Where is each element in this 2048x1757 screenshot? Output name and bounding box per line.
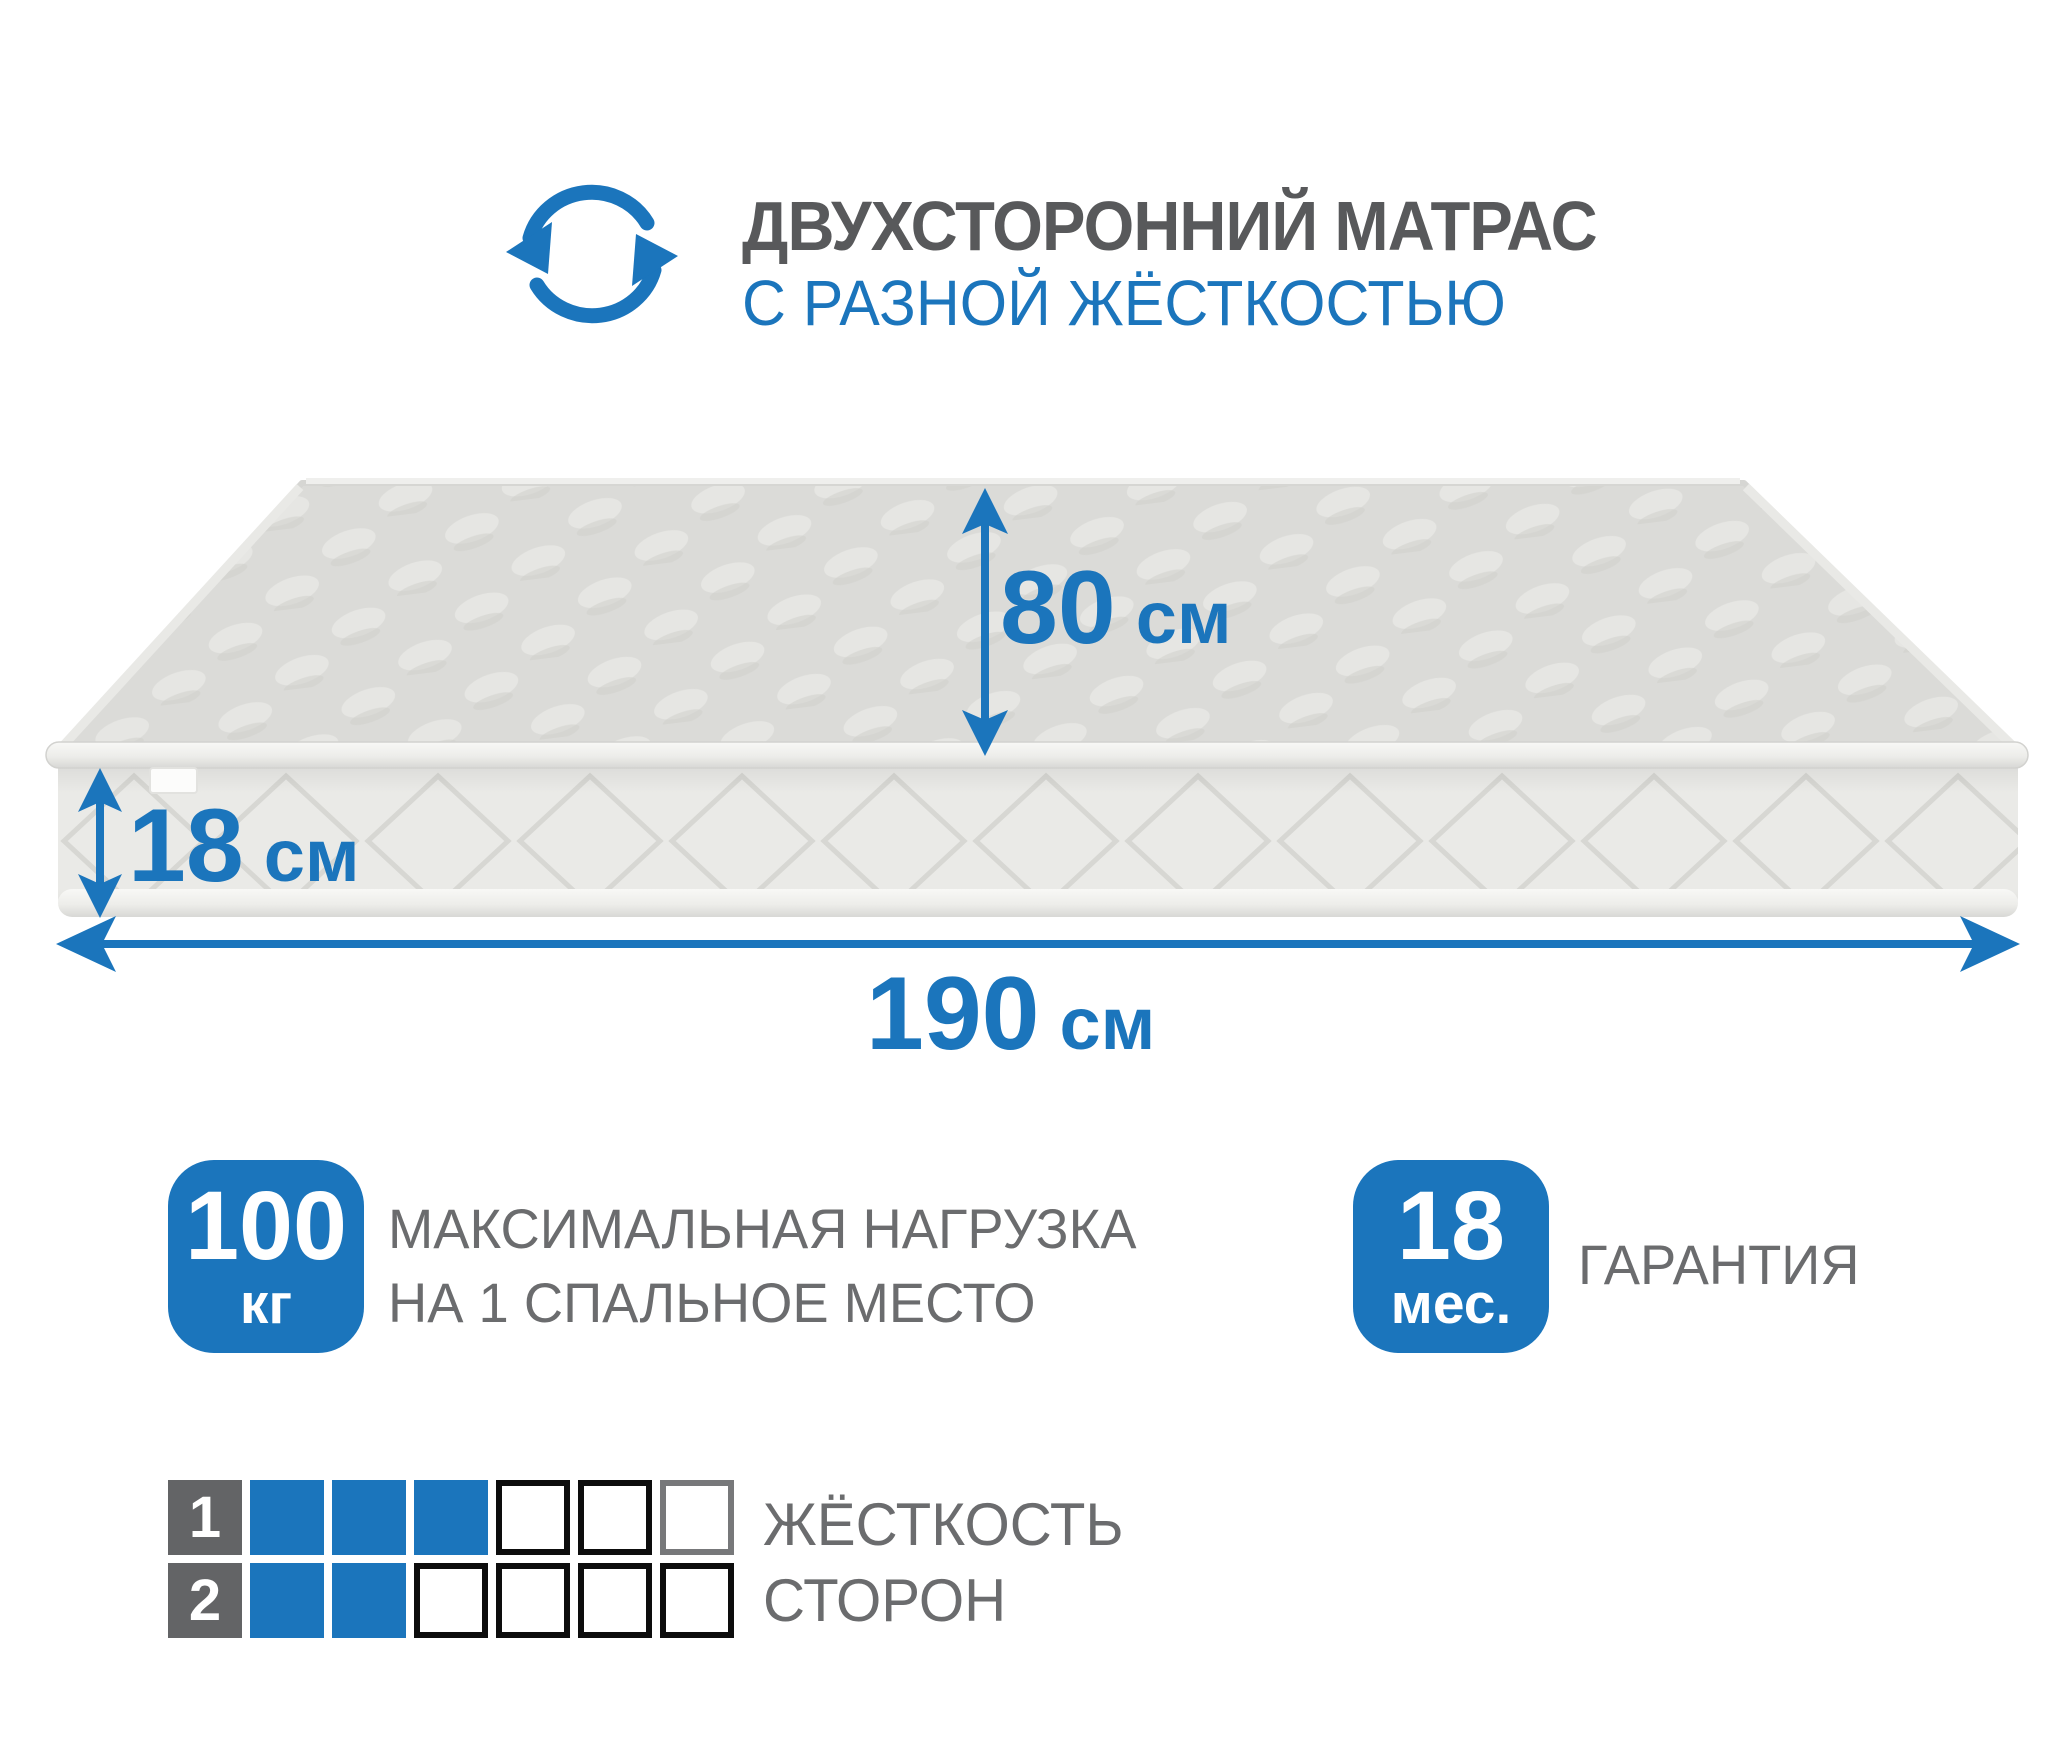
hardness-row-2: 2: [168, 1563, 734, 1638]
max-load-badge: 100 кг: [168, 1160, 364, 1353]
warranty-caption: ГАРАНТИЯ: [1578, 1228, 1860, 1302]
hardness-cell: [414, 1563, 488, 1638]
hardness-scale-caption-line1: ЖЁСТКОСТЬ: [763, 1490, 1124, 1559]
page-title: ДВУХСТОРОННИЙ МАТРАС: [742, 186, 1597, 266]
hardness-cell: [578, 1480, 652, 1555]
hardness-row-1: 1: [168, 1480, 734, 1555]
hardness-scale: 1 2: [168, 1480, 734, 1646]
hardness-cell: [332, 1563, 406, 1638]
hardness-cell: [496, 1563, 570, 1638]
hardness-cell: [250, 1480, 324, 1555]
depth-dimension-label: 80 см: [1000, 556, 1232, 660]
max-load-caption-line2: НА 1 СПАЛЬНОЕ МЕСТО: [388, 1266, 1136, 1340]
warranty-unit: мес.: [1391, 1276, 1512, 1333]
page-subtitle: С РАЗНОЙ ЖЁСТКОСТЬЮ: [742, 266, 1506, 340]
width-value: 190: [866, 962, 1040, 1066]
width-dimension-label: 190 см: [866, 962, 1155, 1066]
thickness-dimension-label: 18 см: [128, 794, 360, 898]
hardness-cell: [578, 1563, 652, 1638]
max-load-unit: кг: [240, 1276, 292, 1333]
hardness-row-2-index: 2: [168, 1563, 242, 1638]
hardness-cell: [414, 1480, 488, 1555]
hardness-cell: [660, 1563, 734, 1638]
hardness-cell: [332, 1480, 406, 1555]
front-piping: [46, 742, 2028, 768]
warranty-badge: 18 мес.: [1353, 1160, 1549, 1353]
infographic-canvas: ДВУХСТОРОННИЙ МАТРАС С РАЗНОЙ ЖЁСТКОСТЬЮ…: [0, 0, 2048, 1757]
width-unit: см: [1060, 987, 1156, 1061]
hardness-cell: [660, 1480, 734, 1555]
max-load-caption: МАКСИМАЛЬНАЯ НАГРУЗКА НА 1 СПАЛЬНОЕ МЕСТ…: [388, 1192, 1136, 1340]
hardness-cell: [496, 1480, 570, 1555]
depth-unit: см: [1136, 581, 1232, 655]
thickness-unit: см: [264, 819, 360, 893]
warranty-value: 18: [1397, 1180, 1505, 1272]
hardness-scale-caption-line2: СТОРОН: [763, 1566, 1006, 1635]
hardness-cell: [250, 1563, 324, 1638]
depth-value: 80: [1000, 556, 1116, 660]
max-load-caption-line1: МАКСИМАЛЬНАЯ НАГРУЗКА: [388, 1192, 1136, 1266]
rotate-arrows-icon: [506, 192, 678, 315]
hardness-row-1-index: 1: [168, 1480, 242, 1555]
max-load-value: 100: [185, 1180, 347, 1272]
thickness-value: 18: [128, 794, 244, 898]
